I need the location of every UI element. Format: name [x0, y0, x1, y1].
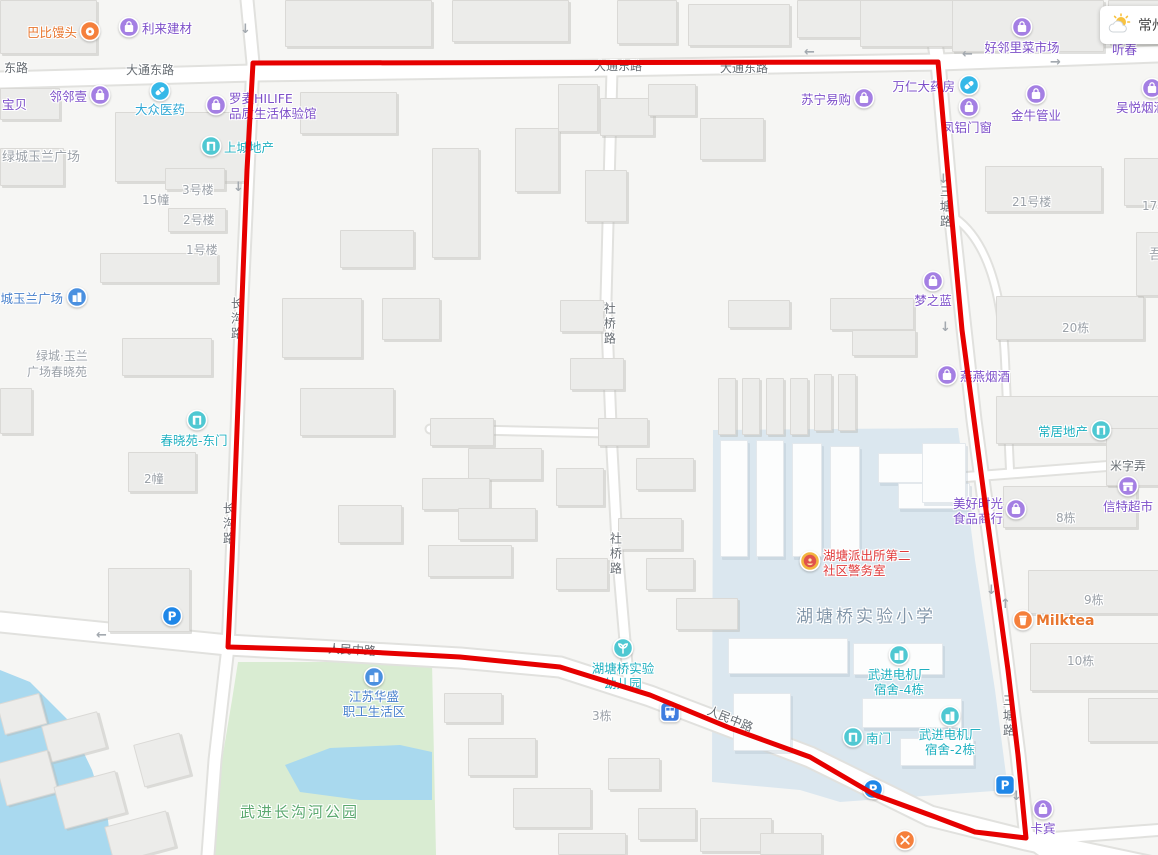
- building-footprint: [838, 374, 856, 431]
- traffic-arrow-icon: ←: [962, 47, 973, 62]
- poi-label: 江苏华盛职工生活区: [343, 690, 406, 720]
- building-footprint: [648, 84, 696, 116]
- place-label: 吾: [1149, 247, 1158, 264]
- building-footprint: [428, 545, 512, 577]
- parking-icon[interactable]: P: [161, 605, 183, 631]
- building-footprint: [718, 378, 736, 435]
- poi-label: 罗麦HILIFE品质生活体验馆: [229, 92, 317, 122]
- place-label: 湖塘桥实验小学: [796, 607, 936, 627]
- badge-icon[interactable]: [799, 550, 821, 576]
- poi-label: 利来建材: [142, 22, 192, 37]
- building-footprint: [618, 518, 682, 550]
- building-footprint: [122, 338, 212, 376]
- poi-label: 听春: [1112, 43, 1137, 58]
- poi-label: 吴悦烟酒: [1116, 101, 1158, 116]
- restaurant-icon[interactable]: [894, 829, 916, 855]
- building-footprint: [513, 788, 591, 828]
- building-footprint: [382, 298, 440, 340]
- place-label: 21号楼: [1012, 195, 1051, 209]
- road-label: 社桥路: [608, 532, 622, 577]
- traffic-arrow-icon: ↓: [233, 180, 244, 195]
- building-footprint: [756, 440, 784, 557]
- building-footprint: [432, 148, 479, 258]
- building-footprint: [100, 253, 218, 283]
- shop-icon[interactable]: [1117, 475, 1139, 501]
- poi-label: 美好时光食品商行: [953, 497, 1003, 527]
- bag-icon[interactable]: [118, 16, 140, 42]
- traffic-arrow-icon: ↓: [240, 22, 251, 37]
- building-footprint: [1088, 698, 1158, 742]
- building-footprint: [468, 448, 542, 480]
- road-label: 东路: [4, 61, 28, 75]
- poi-label: 春晓苑-东门: [160, 434, 227, 449]
- poi-label: 宝贝: [2, 98, 27, 113]
- building-footprint: [636, 458, 694, 490]
- place-label: 3号楼: [182, 183, 214, 197]
- community-icon[interactable]: [66, 286, 88, 312]
- bun-icon[interactable]: [79, 20, 101, 46]
- building-footprint: [444, 693, 502, 723]
- svg-text:P: P: [168, 609, 177, 623]
- place-label: 广场春晓苑: [27, 365, 87, 379]
- poi-label: 苏宁易购: [801, 93, 851, 108]
- road-label: 大通东路: [126, 63, 174, 77]
- poi-label: 万仁大药房: [892, 80, 955, 95]
- road-label: 米字弄: [1110, 459, 1146, 473]
- building-footprint: [556, 468, 604, 506]
- building-footprint: [452, 0, 569, 42]
- building-footprint: [608, 758, 660, 790]
- building-footprint: [852, 330, 916, 356]
- building-footprint: [797, 0, 867, 38]
- door-icon[interactable]: [1090, 419, 1112, 445]
- traffic-arrow-icon: →: [1050, 55, 1061, 70]
- poi-label: 邻邻壹: [49, 90, 87, 105]
- place-label: 20栋: [1062, 321, 1089, 335]
- traffic-arrow-icon: ↓: [938, 172, 949, 187]
- building-footprint: [338, 505, 402, 543]
- poi-label: 南门: [866, 732, 891, 747]
- poi-label: 好邻里菜市场: [984, 41, 1059, 56]
- building-footprint: [922, 443, 966, 503]
- building-footprint: [422, 478, 490, 510]
- building-footprint: [728, 638, 848, 674]
- traffic-arrow-icon: ↓: [986, 583, 997, 598]
- bag-icon[interactable]: [936, 364, 958, 390]
- place-label: 1号楼: [186, 243, 218, 257]
- building-footprint: [720, 440, 748, 557]
- building-footprint: [600, 98, 654, 136]
- poi-label: 常居地产: [1038, 425, 1088, 440]
- place-label: 8栋: [1056, 511, 1076, 525]
- bag-icon[interactable]: [853, 87, 875, 113]
- poi-label: 湖塘派出所第二社区警务室: [823, 549, 911, 579]
- sprout-icon[interactable]: [612, 637, 634, 663]
- parking-sq-icon[interactable]: P: [994, 774, 1016, 800]
- building-footprint: [570, 358, 624, 390]
- place-label: 10栋: [1067, 654, 1094, 668]
- place-label: 15幢: [142, 193, 169, 207]
- poi-label: 梦之蓝: [914, 294, 952, 309]
- building-footprint: [556, 558, 608, 590]
- traffic-arrow-icon: ←: [96, 628, 107, 643]
- building-footprint: [585, 170, 627, 222]
- road-label: 人民中路: [328, 642, 377, 659]
- traffic-arrow-icon: ↓: [940, 320, 951, 335]
- road-label: 长沟路: [221, 502, 235, 547]
- building-footprint: [742, 378, 760, 435]
- place-label: 17栋: [1142, 199, 1158, 213]
- traffic-arrow-icon: ↑: [1000, 597, 1011, 612]
- bag-icon[interactable]: [958, 96, 980, 122]
- poi-label: 武进电机厂宿舍-2栋: [919, 728, 982, 758]
- place-label: 绿城玉兰广场: [2, 150, 80, 166]
- place-label: 武进长沟河公园: [240, 803, 359, 821]
- building-footprint: [760, 833, 822, 855]
- weather-city: 常州: [1138, 15, 1158, 35]
- bag-icon[interactable]: [1005, 498, 1027, 524]
- bag-icon[interactable]: [1011, 16, 1033, 42]
- building-footprint: [0, 388, 32, 434]
- building-footprint: [430, 418, 494, 446]
- weather-widget[interactable]: 常州: [1100, 6, 1158, 44]
- place-label: 绿城·玉兰: [36, 349, 88, 363]
- poi-label: 武进电机厂宿舍-4栋: [868, 668, 931, 698]
- road-label: 大通东路: [594, 59, 642, 73]
- road-label: 三塘路: [938, 185, 952, 230]
- building-footprint: [638, 808, 696, 840]
- building-footprint: [728, 300, 790, 328]
- building-footprint: [558, 84, 598, 132]
- building-footprint: [515, 128, 559, 192]
- bag-icon[interactable]: [1025, 83, 1047, 109]
- poi-label: 湖塘桥实验幼儿园: [592, 662, 655, 692]
- building-footprint: [688, 4, 790, 46]
- building-footprint: [458, 508, 536, 540]
- bus-icon[interactable]: [659, 701, 681, 727]
- parking-icon[interactable]: P: [862, 778, 884, 804]
- road-label: 长沟路: [229, 297, 243, 342]
- building-footprint: [646, 558, 694, 590]
- building-footprint: [1136, 232, 1158, 296]
- building-footprint: [790, 378, 808, 435]
- poi-label: 卡宾: [1030, 822, 1055, 837]
- sun-cloud-icon: [1108, 13, 1132, 37]
- building-footprint: [300, 388, 394, 436]
- door-icon[interactable]: [200, 135, 222, 161]
- poi-label: 巴比馒头: [27, 26, 77, 41]
- poi-label: 金牛管业: [1011, 109, 1061, 124]
- road-label: 三塘路: [1001, 694, 1015, 739]
- place-label: 9栋: [1084, 593, 1104, 607]
- poi-label: 上城地产: [224, 141, 274, 156]
- building-footprint: [282, 298, 362, 358]
- door-icon[interactable]: [842, 726, 864, 752]
- building-footprint: [676, 598, 738, 630]
- poi-label: 绿城玉兰广场: [0, 292, 63, 307]
- bag-icon[interactable]: [205, 94, 227, 120]
- poi-label: 燕燕烟酒: [960, 370, 1010, 385]
- building-footprint: [285, 0, 432, 47]
- cup-icon[interactable]: [1012, 609, 1034, 635]
- map-canvas[interactable]: 东路大通东路大通东路大通东路人民中路人民中路米字弄长沟路长沟路社桥路社桥路三塘路…: [0, 0, 1158, 855]
- road-label: 社桥路: [602, 302, 616, 347]
- poi-label: 凤铝门窗: [942, 121, 992, 136]
- building-footprint: [340, 230, 414, 268]
- poi-label: Milktea: [1036, 613, 1094, 630]
- svg-text:P: P: [1001, 778, 1010, 792]
- building-footprint: [468, 738, 536, 776]
- poi-label: 大众医药: [135, 103, 185, 118]
- road-label: 大通东路: [720, 61, 768, 75]
- traffic-arrow-icon: ←: [804, 45, 815, 60]
- building-footprint: [617, 0, 677, 44]
- place-label: 2号楼: [183, 213, 215, 227]
- building-footprint: [814, 374, 832, 431]
- building-footprint: [766, 378, 784, 435]
- building-footprint: [700, 118, 764, 160]
- poi-label: 信特超市: [1103, 500, 1153, 515]
- building-footprint: [560, 300, 604, 332]
- place-label: 3栋: [592, 709, 612, 723]
- building-footprint: [830, 298, 914, 330]
- svg-text:P: P: [869, 782, 878, 796]
- building-footprint: [792, 443, 822, 557]
- building-footprint: [830, 446, 860, 556]
- bag-icon[interactable]: [89, 84, 111, 110]
- place-label: 2幢: [144, 472, 164, 486]
- building-footprint: [1028, 570, 1158, 614]
- building-footprint: [598, 418, 648, 446]
- door-icon[interactable]: [186, 409, 208, 435]
- building-footprint: [558, 833, 626, 855]
